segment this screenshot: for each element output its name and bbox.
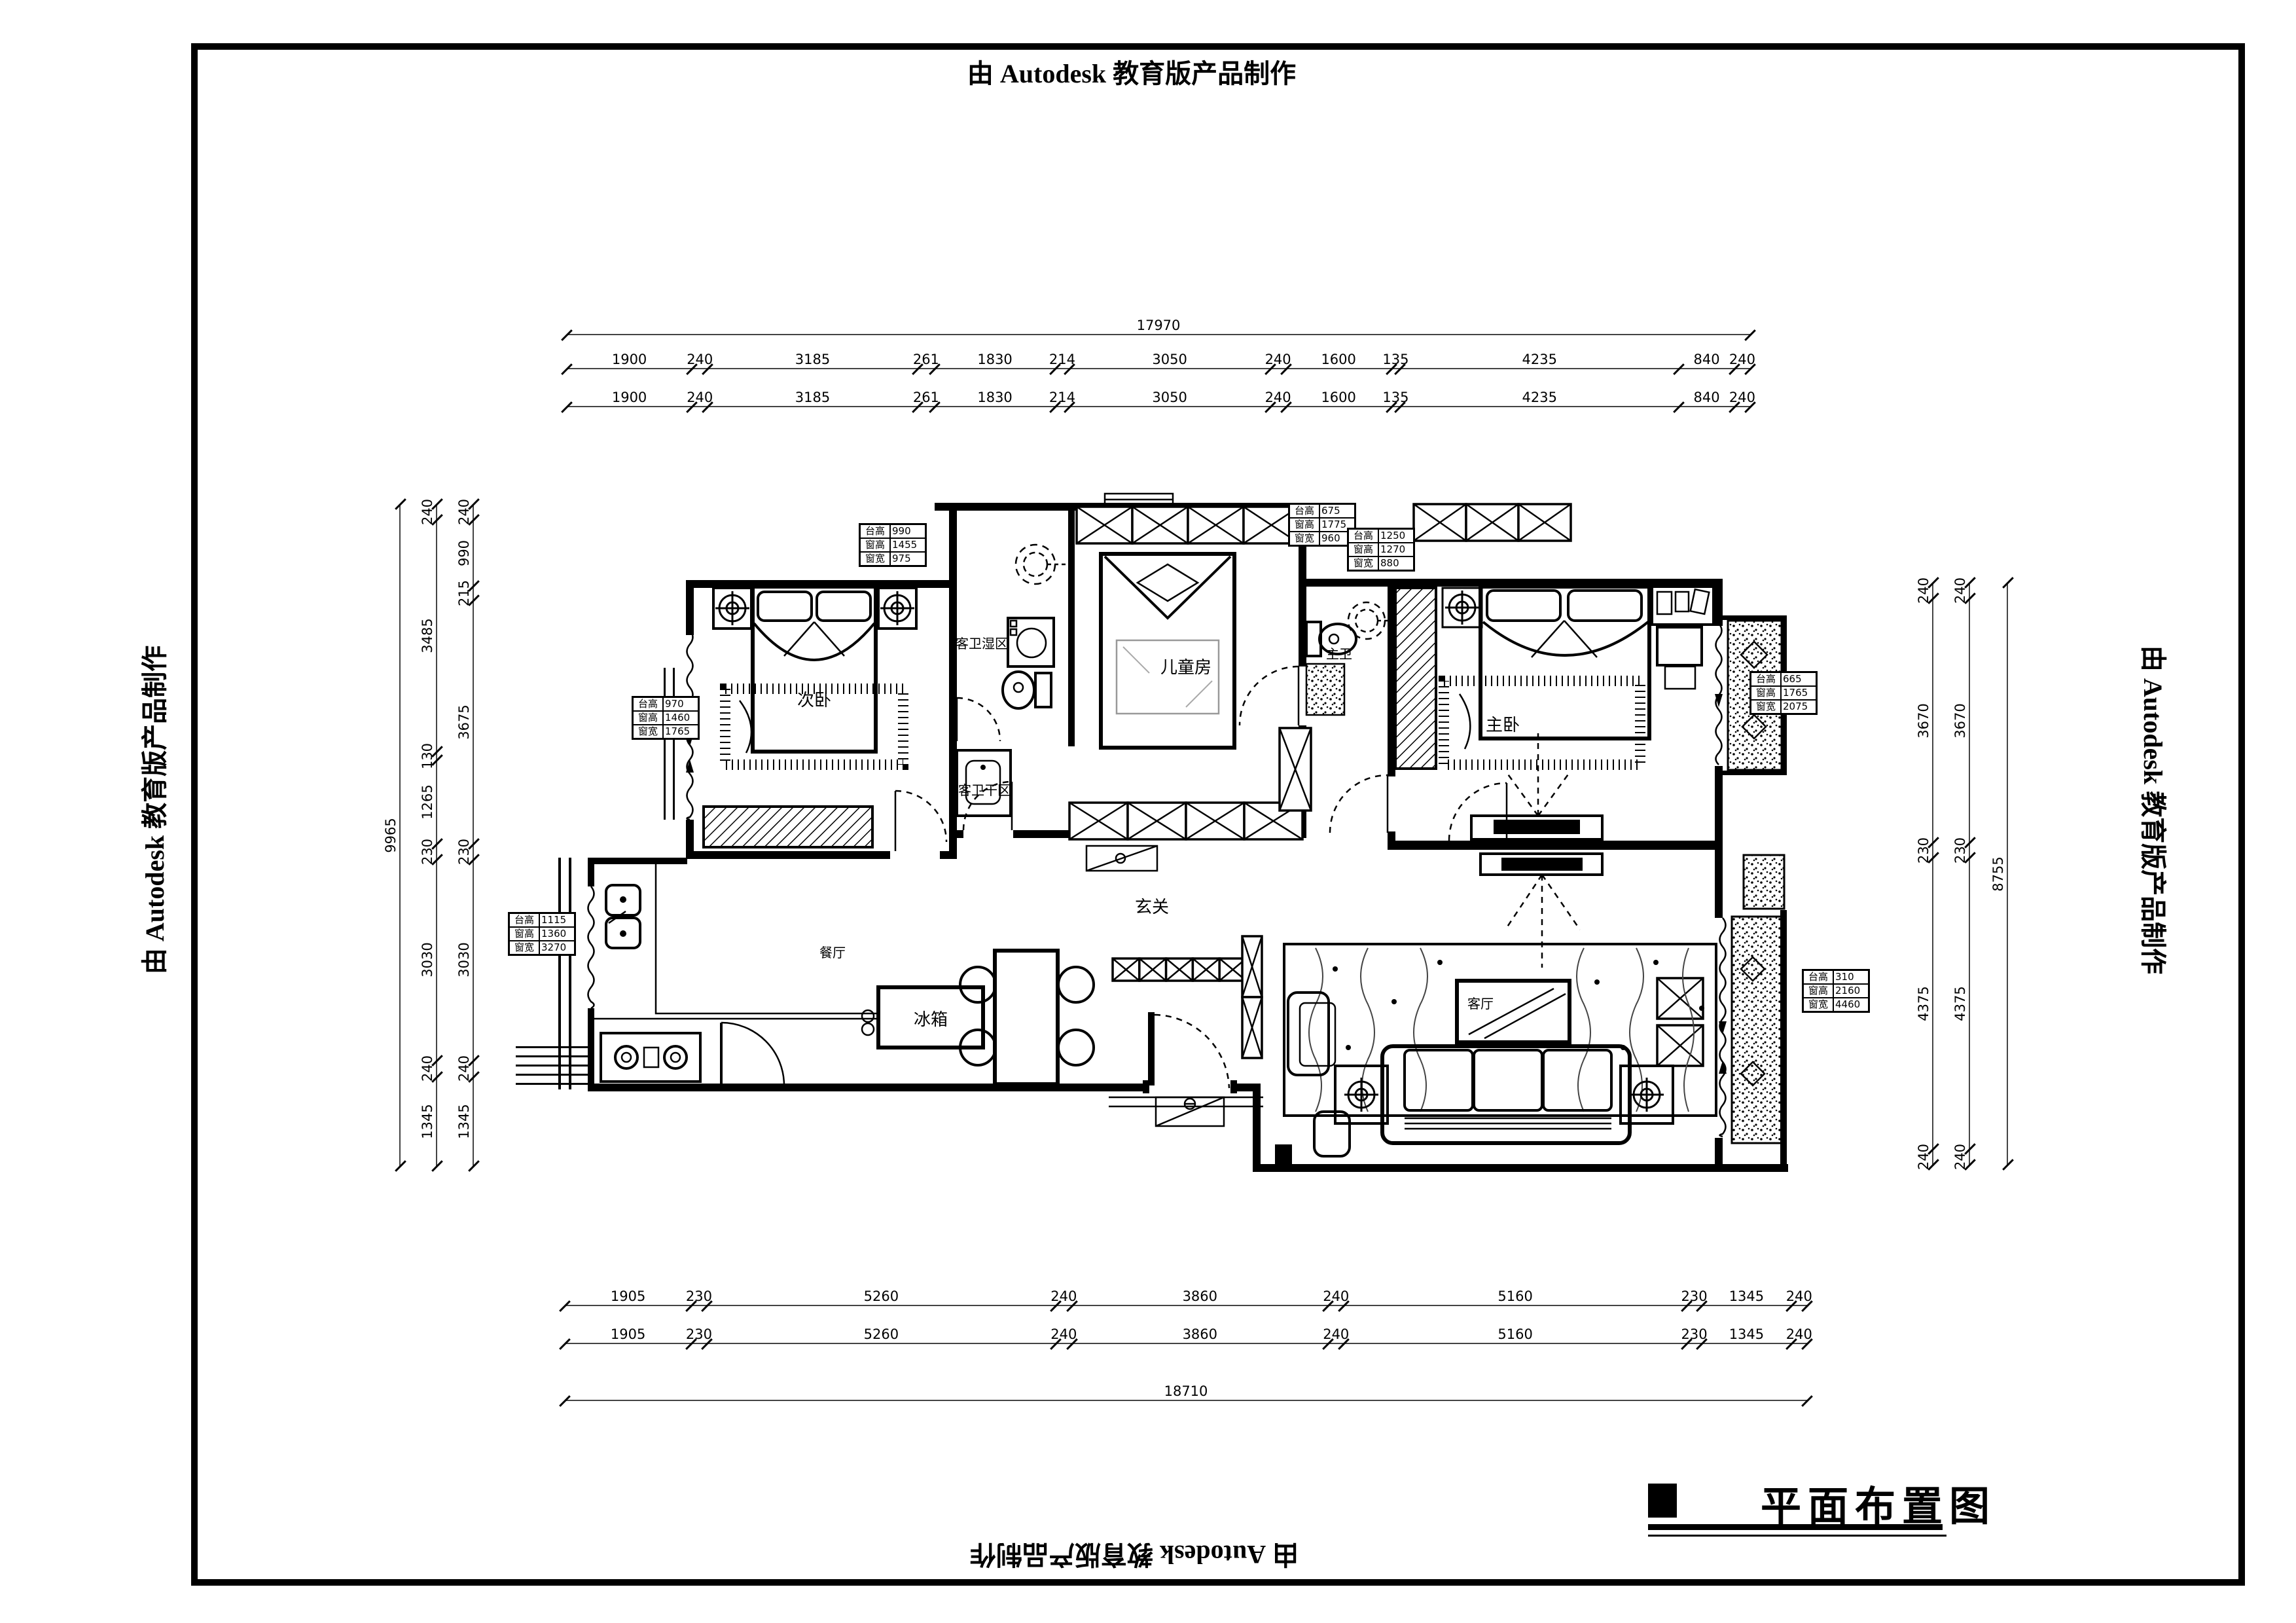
dim-value: 3675: [456, 704, 472, 739]
closet-corridor: [1069, 803, 1302, 839]
spec-label: 窗宽: [510, 941, 539, 954]
dim-value: 5260: [864, 1326, 899, 1342]
dim-value: 240: [1952, 577, 1968, 604]
spec-label: 窗宽: [634, 725, 662, 738]
sofa-living: [1382, 1046, 1630, 1143]
dim-value: 9965: [383, 818, 399, 852]
dim-value: 4375: [1916, 986, 1931, 1021]
dim-chain-right-row1: 24036702304375240: [1932, 583, 1933, 1165]
dim-value: 240: [1916, 1144, 1931, 1170]
dim-value: 230: [420, 839, 435, 865]
room-label-dining: 餐厅: [819, 945, 846, 960]
dim-value: 1830: [977, 390, 1012, 405]
spec-label: 台高: [510, 914, 539, 926]
dim-value: 3030: [456, 943, 472, 977]
dim-value: 261: [913, 352, 939, 367]
dim-value: 240: [1323, 1326, 1349, 1342]
dim-value: 240: [456, 499, 472, 525]
title-underline-thin: [1648, 1535, 1946, 1537]
spec-label: 窗宽: [1349, 557, 1378, 570]
dim-value: 990: [456, 540, 472, 566]
room-label-living: 客厅: [1467, 996, 1494, 1012]
dim-value: 3670: [1952, 703, 1968, 738]
spec-label: 窗高: [861, 539, 889, 551]
bed-kids: [1101, 554, 1234, 748]
spec-value: 1270: [1379, 543, 1413, 556]
dim-value: 1600: [1321, 390, 1355, 405]
room-label-master-bath: 主卫: [1326, 646, 1352, 662]
spec-value: 1360: [540, 928, 574, 940]
room-label-master-bedroom: 主卧: [1486, 716, 1520, 735]
dim-value: 3185: [795, 390, 830, 405]
spec-value: 1250: [1379, 530, 1413, 542]
lamp-side-left: [1344, 1078, 1378, 1112]
dim-value: 5160: [1498, 1288, 1532, 1304]
door-guest-wet: [957, 698, 1000, 741]
dim-value: 1265: [420, 785, 435, 820]
dim-value: 240: [456, 1055, 472, 1082]
dim-value: 3860: [1183, 1326, 1217, 1342]
window-spec-box-7: 台高310窗高2160窗宽4460: [1802, 969, 1870, 1013]
tv-living: [1480, 854, 1602, 968]
dim-value: 1905: [611, 1326, 645, 1342]
dining-set: [960, 951, 1094, 1084]
spec-value: 675: [1320, 505, 1354, 517]
dim-value: 3185: [795, 352, 830, 367]
spec-label: 窗高: [634, 712, 662, 724]
coffee-table: [1457, 981, 1570, 1042]
spec-label: 窗高: [1290, 519, 1319, 531]
dim-value: 18710: [1164, 1383, 1208, 1399]
dim-value: 1830: [977, 352, 1012, 367]
drawing-sheet: 由 Autodesk 教育版产品制作 由 Autodesk 教育版产品制作 由 …: [0, 0, 2296, 1623]
room-label-fridge: 冰箱: [914, 1010, 948, 1030]
dim-value: 17970: [1137, 318, 1181, 333]
spec-value: 1765: [664, 725, 698, 738]
dim-value: 240: [1786, 1326, 1812, 1342]
window-spec-box-2: 台高675窗高1775窗宽960: [1288, 503, 1356, 547]
dim-value: 240: [1786, 1288, 1812, 1304]
dim-value: 240: [1729, 390, 1755, 405]
dim-value: 4235: [1522, 352, 1557, 367]
wardrobe-secondary-bedroom: [704, 807, 872, 847]
spec-label: 台高: [1751, 673, 1780, 685]
dim-chain-bottom-total: 18710: [565, 1400, 1807, 1401]
dim-chain-top-row1: 1900240318526118302143050240160013542358…: [567, 368, 1750, 369]
dim-chain-left-total: 9965: [399, 504, 401, 1166]
spec-label: 窗宽: [1290, 532, 1319, 545]
spec-label: 窗高: [1751, 687, 1780, 699]
spec-value: 310: [1834, 971, 1868, 983]
dim-chain-top-row2: 1900240318526118302143050240160013542358…: [567, 406, 1750, 407]
dim-value: 240: [687, 390, 713, 405]
window-spec-box-6: 台高665窗高1765窗宽2075: [1749, 671, 1818, 715]
ottoman-1: [1657, 978, 1703, 1019]
spec-value: 1115: [540, 914, 574, 926]
dim-value: 240: [1265, 390, 1291, 405]
entry-door: [1109, 1012, 1263, 1126]
window-spec-box-5: 台高970窗高1460窗宽1765: [632, 696, 700, 740]
dim-value: 240: [687, 352, 713, 367]
page-title: 平面布置图: [1761, 1473, 1996, 1532]
dim-value: 240: [420, 499, 435, 525]
spec-label: 台高: [1290, 505, 1319, 517]
dim-value: 240: [1050, 1326, 1077, 1342]
spec-value: 4460: [1834, 998, 1868, 1011]
dim-value: 240: [1323, 1288, 1349, 1304]
dim-value: 240: [1916, 577, 1931, 604]
dim-value: 3860: [1183, 1288, 1217, 1304]
dim-value: 240: [1050, 1288, 1077, 1304]
ottoman-2: [1657, 1025, 1703, 1066]
spec-value: 2075: [1782, 701, 1816, 713]
dim-chain-left-outer: 2403485130126523030302401345: [436, 504, 437, 1166]
spec-value: 3270: [540, 941, 574, 954]
dim-value: 1905: [611, 1288, 645, 1304]
title-block-square: [1648, 1484, 1677, 1518]
room-label-guest-bath-dry: 客卫干区: [958, 782, 1011, 798]
closet-kids-top: [1077, 507, 1299, 543]
dim-value: 1345: [1729, 1326, 1764, 1342]
dim-chain-top-total: 17970: [567, 334, 1750, 335]
ceiling-lamp-secondary-right: [880, 591, 914, 625]
spec-label: 窗高: [510, 928, 539, 940]
dim-chain-bottom-row2: 19052305260240386024051602301345240: [565, 1343, 1807, 1344]
armchair-living: [1288, 993, 1335, 1075]
spec-value: 1460: [664, 712, 698, 724]
nightstand-desk-master: [1652, 587, 1713, 689]
spec-value: 665: [1782, 673, 1816, 685]
window-spec-box-4: 台高1115窗高1360窗宽3270: [508, 912, 576, 956]
dim-value: 1900: [612, 390, 647, 405]
spec-label: 窗宽: [861, 553, 889, 565]
wardrobe-master-bedroom: [1395, 588, 1436, 769]
room-label-kids-room: 儿童房: [1160, 658, 1211, 678]
spec-value: 2160: [1834, 985, 1868, 997]
spec-label: 窗高: [1349, 543, 1378, 556]
closet-hall: [1280, 728, 1311, 811]
spec-label: 台高: [1349, 530, 1378, 542]
spec-label: 台高: [861, 525, 889, 538]
dim-value: 3670: [1916, 703, 1931, 738]
closet-top-bump: [1414, 504, 1571, 541]
room-label-entry: 玄关: [1135, 898, 1169, 917]
tv-master: [1471, 733, 1602, 839]
dim-value: 5160: [1498, 1326, 1532, 1342]
dim-chain-right-total: 8755: [2007, 583, 2008, 1165]
spec-value: 880: [1379, 557, 1413, 570]
ceiling-lamp-master: [1443, 588, 1482, 627]
dim-value: 3050: [1152, 390, 1187, 405]
spec-label: 窗高: [1804, 985, 1833, 997]
dim-value: 240: [1729, 352, 1755, 367]
dim-value: 3050: [1152, 352, 1187, 367]
spec-label: 窗宽: [1804, 998, 1833, 1011]
door-master-bath: [1330, 775, 1388, 833]
guest-bath-wet-fixtures: [1003, 545, 1066, 708]
room-label-secondary-bedroom: 次卧: [797, 691, 831, 710]
dim-chain-right-row2: 24036702304375240: [1969, 583, 1970, 1165]
dim-value: 240: [1952, 1144, 1968, 1170]
dim-value: 1345: [1729, 1288, 1764, 1304]
dim-value: 5260: [864, 1288, 899, 1304]
door-kids: [1240, 666, 1299, 725]
dim-value: 230: [686, 1288, 712, 1304]
dim-value: 3485: [420, 618, 435, 653]
room-label-guest-bath-wet: 客卫湿区: [956, 636, 1008, 651]
dim-value: 230: [686, 1326, 712, 1342]
floor-plan-svg: 次卧 客卫湿区 客卫干区 儿童房 主卫 主卧 玄关 餐厅 客厅 冰箱: [0, 0, 2296, 1623]
dim-value: 240: [1265, 352, 1291, 367]
spec-value: 1765: [1782, 687, 1816, 699]
dim-value: 1900: [612, 352, 647, 367]
dim-value: 840: [1694, 390, 1720, 405]
dim-value: 240: [420, 1055, 435, 1082]
spec-value: 975: [891, 553, 925, 565]
spec-value: 970: [664, 698, 698, 710]
dim-value: 8755: [1990, 856, 2006, 891]
dim-chain-bottom-row1: 19052305260240386024051602301345240: [565, 1305, 1807, 1306]
ceiling-lamp-secondary-left: [715, 591, 749, 625]
spec-label: 台高: [634, 698, 662, 710]
spec-value: 1455: [891, 539, 925, 551]
door-secondary-bedroom: [895, 791, 946, 842]
window-zigzag-kitchen: [588, 886, 594, 1008]
plant-stand: [1314, 1112, 1350, 1156]
dim-value: 261: [913, 390, 939, 405]
dim-value: 1345: [420, 1104, 435, 1139]
shoe-cabinet-entry: [1113, 958, 1246, 981]
cabinet-entry-vertical: [1242, 936, 1262, 1058]
dim-value: 4375: [1952, 986, 1968, 1021]
lamp-side-right: [1630, 1078, 1664, 1112]
dim-value: 230: [456, 839, 472, 865]
dim-value: 1345: [456, 1104, 472, 1139]
window-spec-box-3: 台高1250窗高1270窗宽880: [1347, 528, 1415, 572]
spec-value: 990: [891, 525, 925, 538]
dim-value: 1600: [1321, 352, 1355, 367]
spec-label: 台高: [1804, 971, 1833, 983]
dim-value: 3030: [420, 943, 435, 977]
kitchen-counter: [594, 860, 877, 1085]
title-underline-thick: [1648, 1524, 1943, 1530]
dim-value: 4235: [1522, 390, 1557, 405]
spec-label: 窗宽: [1751, 701, 1780, 713]
dim-value: 840: [1694, 352, 1720, 367]
dim-chain-left-inner: 240990215367523030302401345: [473, 504, 474, 1166]
entry-niche: [1086, 846, 1157, 871]
window-spec-box-1: 台高990窗高1455窗宽975: [859, 523, 927, 567]
